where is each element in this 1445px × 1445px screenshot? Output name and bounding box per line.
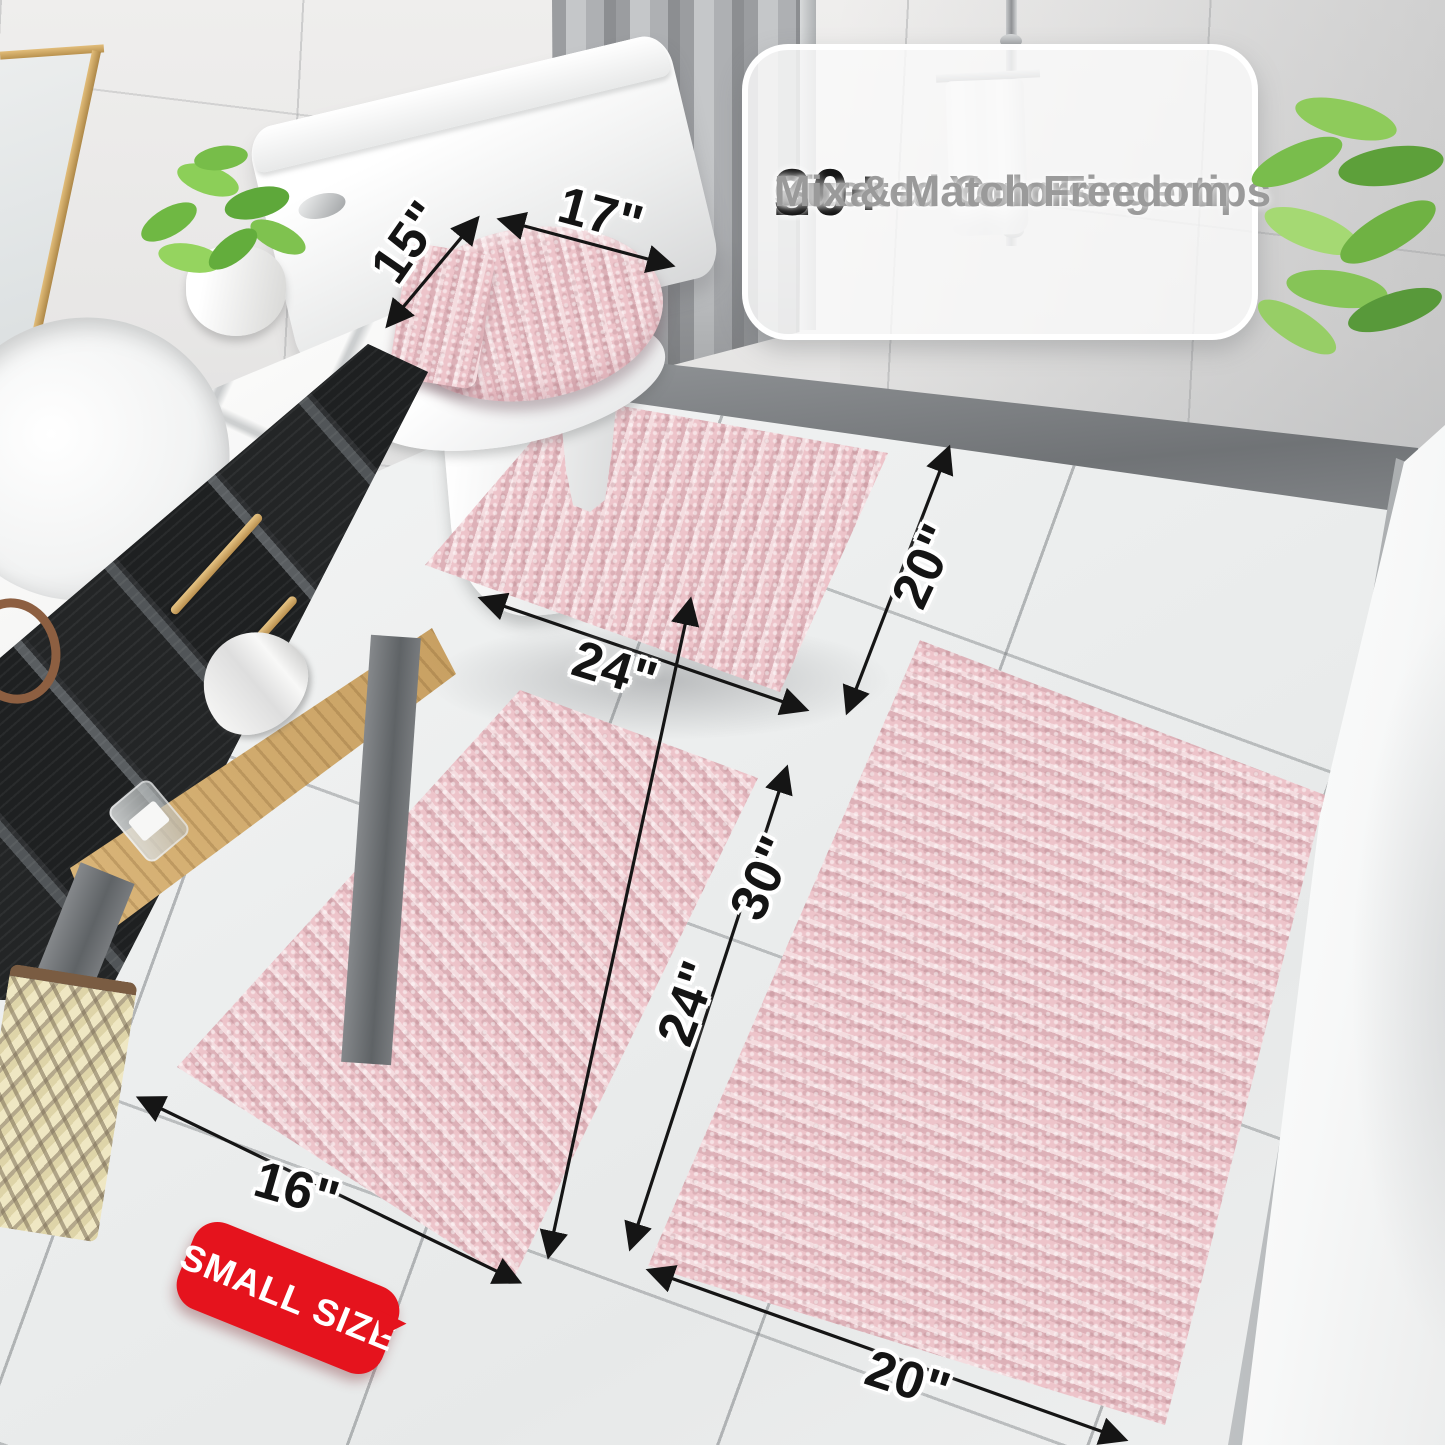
counter-plant [128, 148, 318, 288]
bottle-label [128, 800, 171, 842]
feature-callout-card: ✔ 20+ Sizes at Your Fingertips ✔ 30+ Cur… [742, 44, 1258, 340]
feature-label: Mix & Match Freedom [774, 170, 1229, 214]
product-image: 15" 17" 24" 20" 24" 30" 16" 20" ✔ 20+ Si… [0, 0, 1445, 1445]
corner-plant [1242, 85, 1445, 365]
